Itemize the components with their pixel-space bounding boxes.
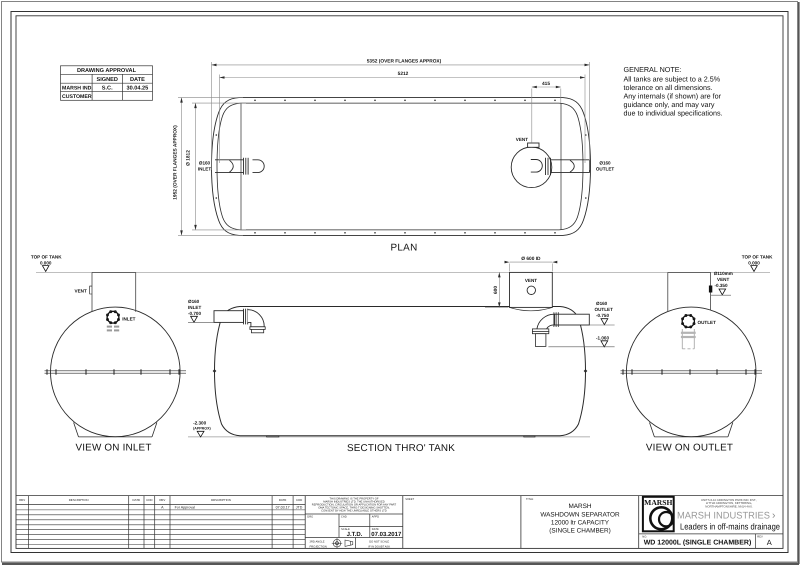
svg-text:Ø 1812: Ø 1812 [186,150,192,166]
svg-text:-0.700: -0.700 [188,311,201,316]
svg-text:12000 ltr CAPACITY: 12000 ltr CAPACITY [551,519,610,526]
svg-text:JTD: JTD [296,506,303,510]
svg-text:Ø160: Ø160 [188,299,200,304]
svg-text:TOP OF TANK: TOP OF TANK [31,254,62,259]
svg-text:SHEET: SHEET [405,498,414,501]
svg-text:SCALE: SCALE [341,528,350,531]
svg-text:MARSH IND.: MARSH IND. [62,86,93,92]
svg-text:0.000: 0.000 [748,260,760,265]
svg-text:PROJECTION: PROJECTION [310,545,327,548]
svg-text:DATE: DATE [130,77,145,83]
svg-text:DO NOT SCALE: DO NOT SCALE [369,540,389,543]
svg-text:5212: 5212 [398,71,409,77]
svg-text:A: A [767,538,772,547]
svg-text:WD 12000L (SINGLE CHAMBER): WD 12000L (SINGLE CHAMBER) [644,539,752,547]
svg-text:07.03.2017: 07.03.2017 [371,531,402,538]
svg-text:›: › [772,510,776,522]
svg-text:For Approval: For Approval [175,506,196,510]
svg-text:NORTHAMPTONSHIRE, NN14 4AS.: NORTHAMPTONSHIRE, NN14 4AS. [705,505,753,509]
svg-text:Ø 600 ID: Ø 600 ID [521,256,541,262]
svg-text:VENT: VENT [717,277,729,282]
svg-text:MARSH INDUSTRIES: MARSH INDUSTRIES [677,510,770,521]
svg-text:CUSTOMER: CUSTOMER [62,94,92,100]
svg-text:Ø110mm: Ø110mm [714,271,733,276]
svg-text:-0.750: -0.750 [596,313,609,318]
svg-text:VENT: VENT [525,278,537,283]
svg-text:CHD: CHD [146,498,152,502]
svg-text:IF IN DOUBT ASK: IF IN DOUBT ASK [368,545,390,548]
svg-text:(SINGLE CHAMBER): (SINGLE CHAMBER) [549,527,610,534]
svg-text:30.04.25: 30.04.25 [127,86,149,92]
svg-text:PLAN: PLAN [391,243,418,254]
svg-text:Ø160: Ø160 [599,161,611,166]
svg-text:DESCRIPTION: DESCRIPTION [211,498,231,502]
svg-text:REV: REV [19,498,25,502]
svg-text:600: 600 [493,286,499,294]
svg-text:S.C.: S.C. [102,86,113,92]
svg-text:-2.300: -2.300 [193,420,206,425]
svg-text:VENT: VENT [516,137,528,142]
svg-text:VENT: VENT [75,289,87,294]
svg-text:MARSH: MARSH [644,498,672,507]
svg-text:GENERAL NOTE:: GENERAL NOTE: [624,65,682,74]
svg-text:OUTLET: OUTLET [698,320,717,325]
svg-text:INLET: INLET [122,316,135,321]
svg-text:SECTION THRO' TANK: SECTION THRO' TANK [347,443,455,454]
svg-text:0.000: 0.000 [40,260,52,265]
svg-text:5352 (OVER FLANGES APPROX): 5352 (OVER FLANGES APPROX) [367,59,442,65]
svg-text:DRAWING APPROVAL: DRAWING APPROVAL [77,68,137,74]
svg-text:INLET: INLET [188,305,201,310]
svg-text:TITLE: TITLE [526,498,534,501]
svg-text:WASHDOWN SEPARATOR: WASHDOWN SEPARATOR [540,511,620,518]
svg-text:SIGNED: SIGNED [96,77,117,83]
svg-text:OUTLET: OUTLET [596,167,615,172]
svg-text:Leaders in off-mains drainage: Leaders in off-mains drainage [680,521,780,531]
svg-text:VIEW ON INLET: VIEW ON INLET [75,442,151,453]
svg-text:DATE: DATE [133,498,141,502]
svg-text:TOP OF TANK: TOP OF TANK [742,254,773,259]
svg-text:DESCRIPTION: DESCRIPTION [69,498,89,502]
svg-text:CONSENT BY HEW THE UNRELIABLE: CONSENT BY HEW THE UNRELIABLE OTHERS LTD [321,510,387,513]
svg-text:VIEW ON OUTLET: VIEW ON OUTLET [646,442,733,453]
svg-text:OUTLET: OUTLET [595,307,614,312]
svg-text:Ø160: Ø160 [596,301,608,306]
svg-text:NO.: NO. [642,535,647,538]
svg-text:INLET: INLET [198,167,211,172]
svg-text:415: 415 [542,81,550,87]
svg-text:07.03.17: 07.03.17 [276,506,290,510]
svg-text:Ø160: Ø160 [199,161,211,166]
svg-text:REV: REV [159,498,165,502]
svg-text:CHD: CHD [296,498,302,502]
svg-text:APPD: APPD [372,516,379,519]
svg-text:REV: REV [757,535,763,538]
svg-text:CAD: CAD [341,516,347,519]
svg-text:-1.060: -1.060 [596,335,609,340]
svg-text:3RD ANGLE: 3RD ANGLE [310,540,325,543]
svg-text:DRG: DRG [307,516,313,519]
svg-text:-0.350: -0.350 [715,283,728,288]
svg-text:(APPROX): (APPROX) [193,427,211,431]
svg-text:1952 (OVER FLANGES APPROX): 1952 (OVER FLANGES APPROX) [173,125,179,200]
svg-text:DATE: DATE [372,528,379,531]
svg-text:DATE: DATE [279,498,287,502]
svg-text:MARSH: MARSH [568,503,591,510]
svg-text:due to individual specificatio: due to individual specifications. [624,109,723,118]
svg-text:J.T.D.: J.T.D. [347,531,363,538]
